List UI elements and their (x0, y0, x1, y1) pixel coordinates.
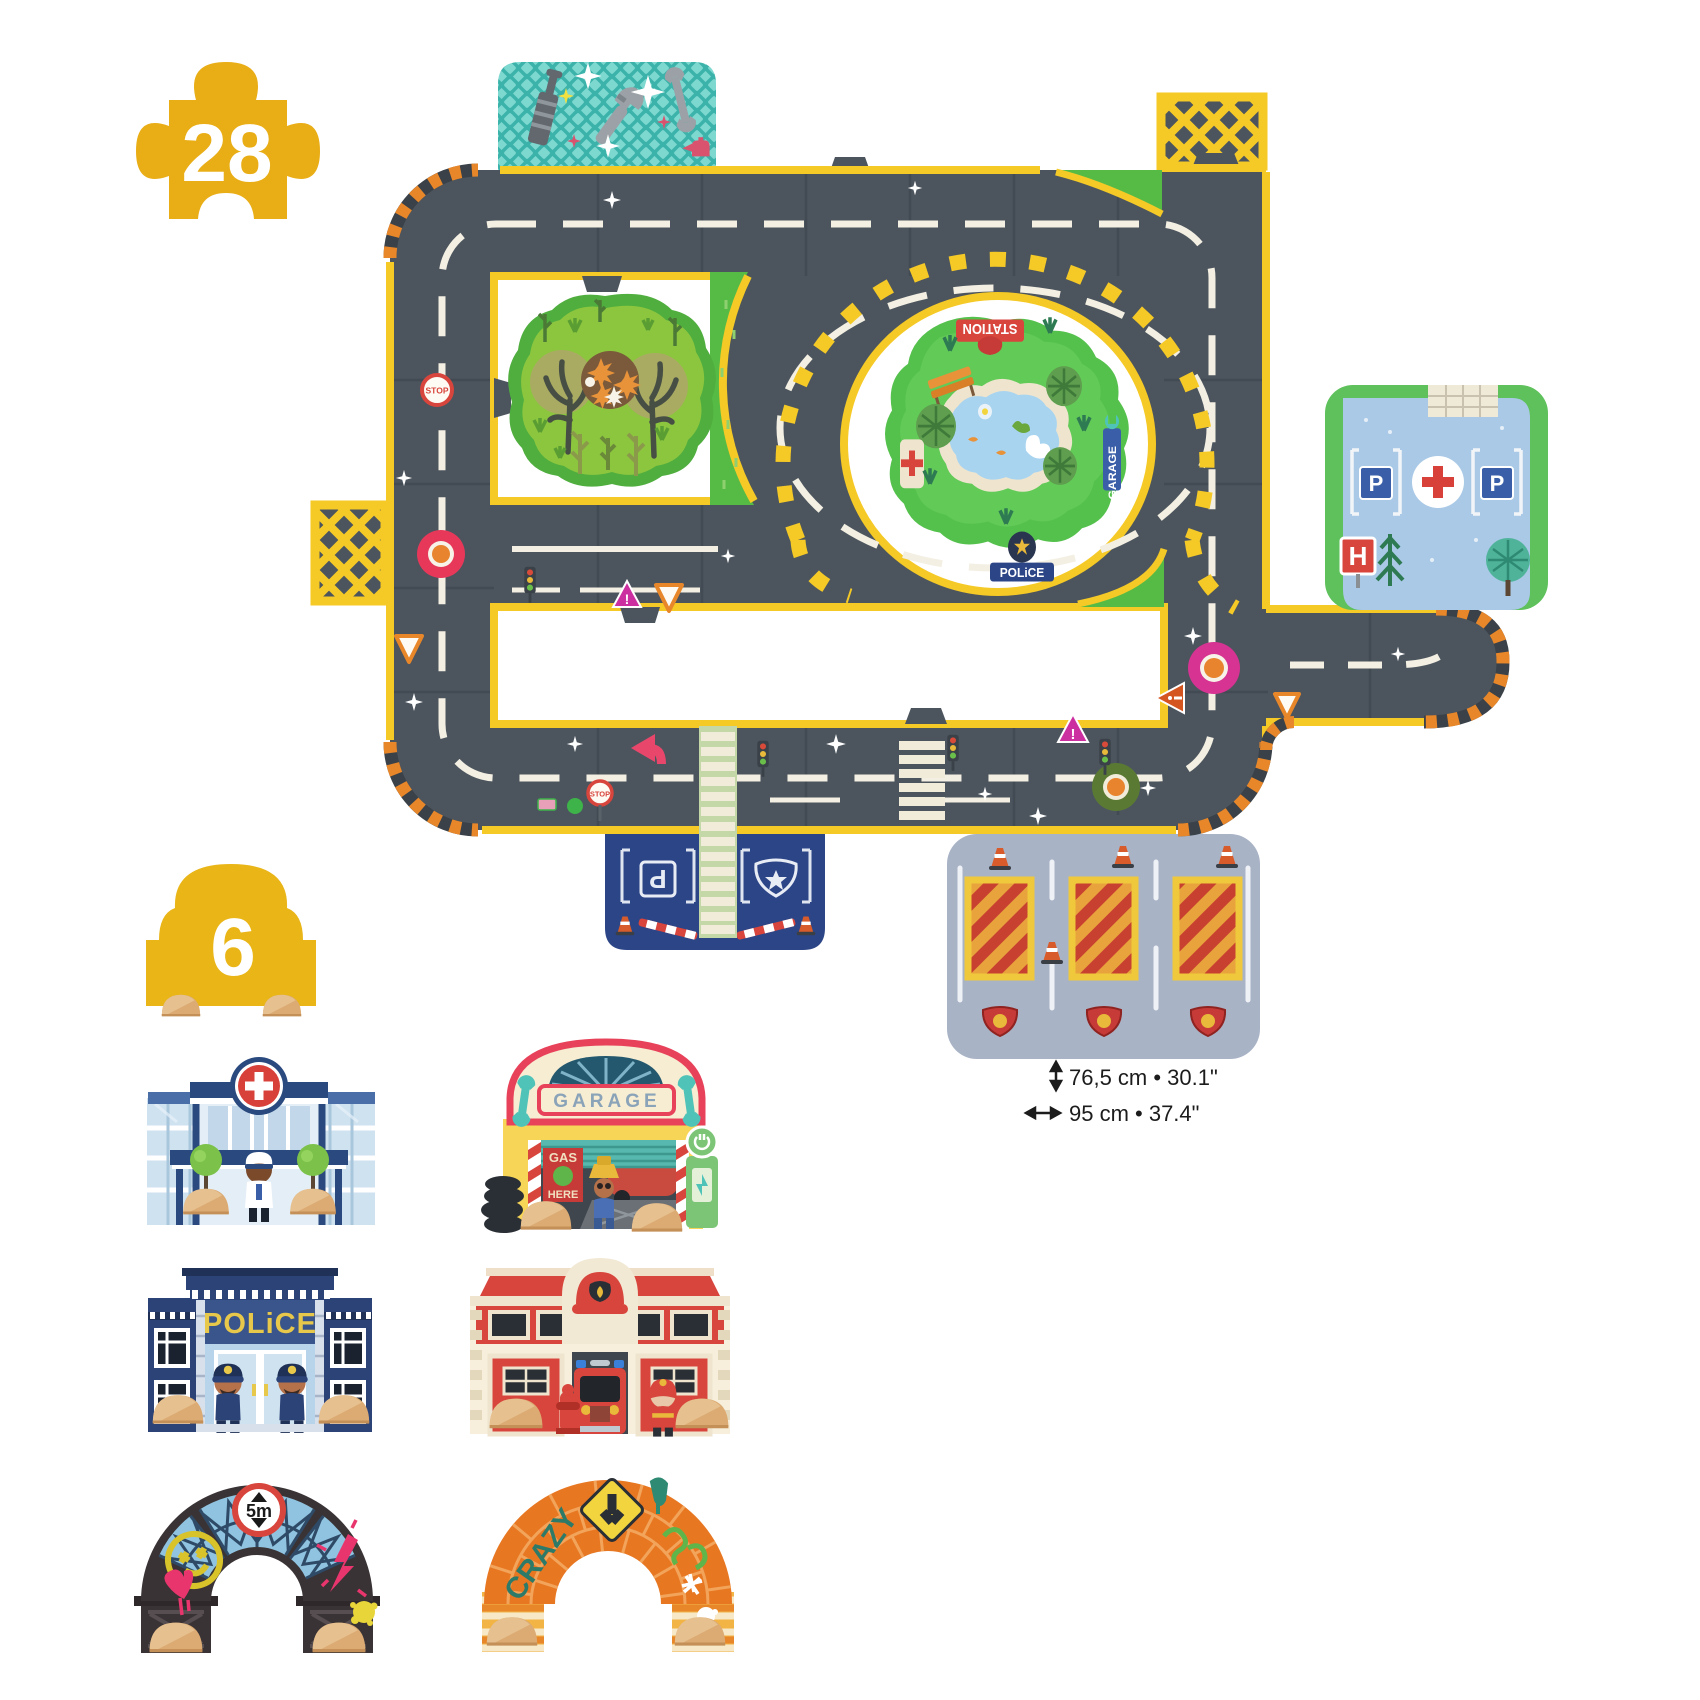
svg-text:!: ! (1071, 726, 1076, 743)
svg-text:P: P (649, 864, 666, 894)
svg-text:POLiCE: POLiCE (1000, 565, 1045, 580)
svg-text:HERE: HERE (548, 1189, 579, 1201)
svg-text:GARAGE: GARAGE (553, 1091, 660, 1112)
svg-text:STOP: STOP (426, 386, 449, 396)
svg-text:5m: 5m (246, 1501, 272, 1521)
svg-text:6: 6 (210, 902, 256, 993)
svg-text:95 cm • 37.4": 95 cm • 37.4" (1069, 1101, 1199, 1126)
svg-text:H: H (1433, 474, 1443, 490)
svg-text:POLiCE: POLiCE (203, 1308, 317, 1340)
svg-text:H: H (1349, 541, 1368, 571)
svg-text:GAS: GAS (549, 1150, 578, 1165)
svg-text:28: 28 (181, 108, 272, 199)
svg-text:STOP: STOP (590, 790, 610, 799)
svg-text:GARAGE: GARAGE (1107, 446, 1119, 500)
svg-text:P: P (1369, 471, 1384, 496)
svg-text:76,5 cm • 30.1": 76,5 cm • 30.1" (1069, 1065, 1218, 1090)
svg-text:P: P (1490, 471, 1505, 496)
svg-text:STATION: STATION (962, 321, 1017, 337)
svg-text:!: ! (625, 591, 630, 607)
